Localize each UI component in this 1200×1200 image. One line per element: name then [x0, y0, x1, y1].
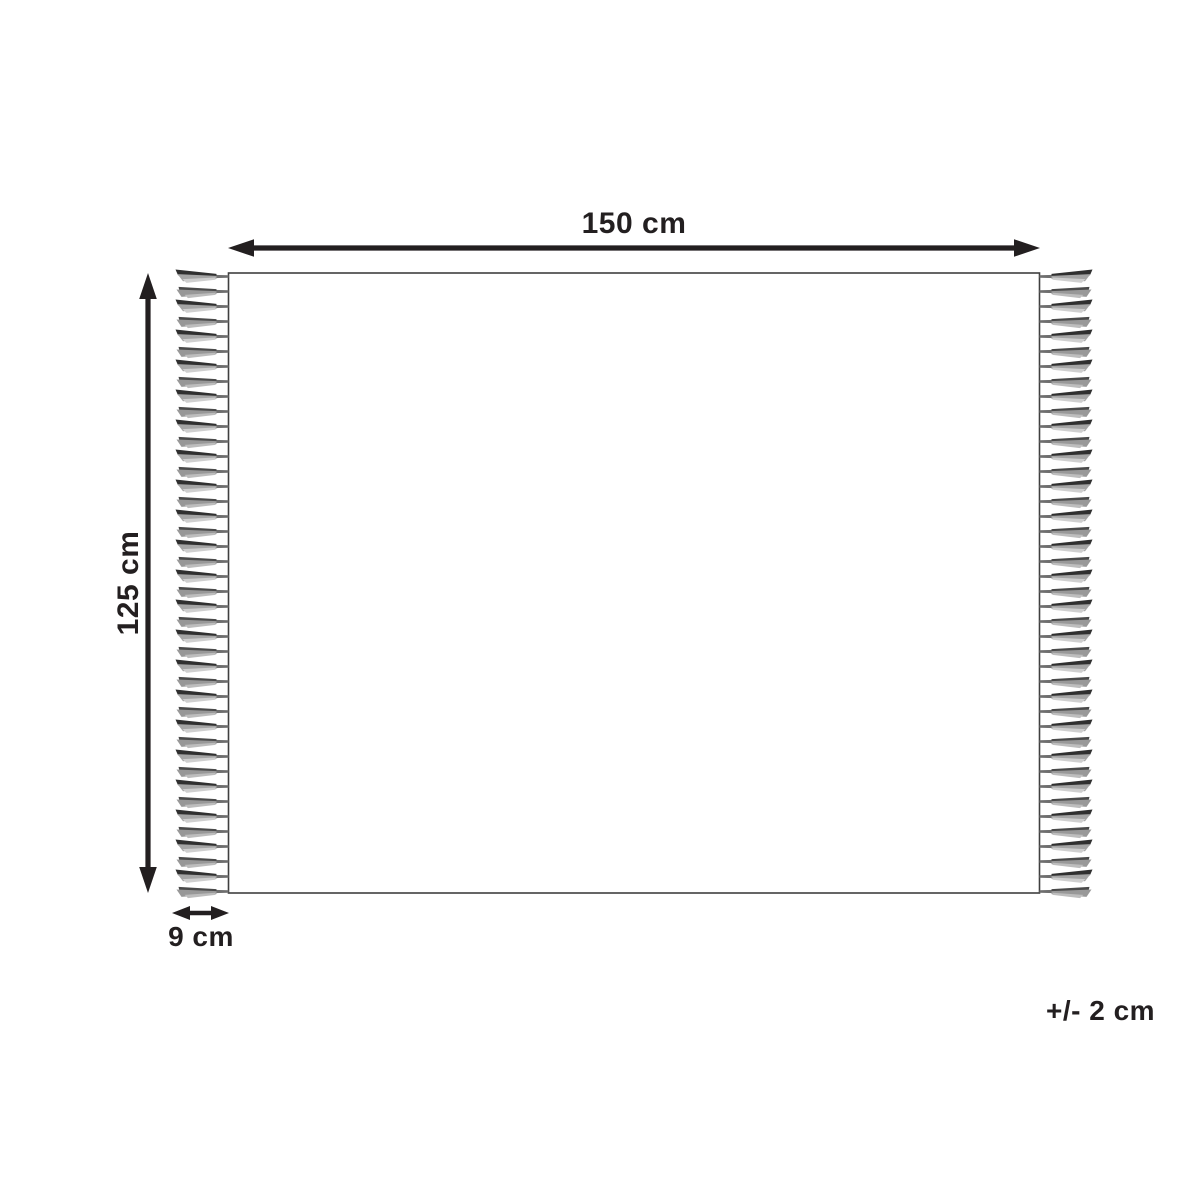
height-arrowhead-top: [139, 273, 157, 299]
tassel: [1040, 617, 1092, 628]
tassel: [176, 300, 229, 313]
tassel: [176, 450, 229, 463]
width-dimension-label: 150 cm: [228, 207, 1040, 242]
tassel: [176, 570, 229, 583]
tassel: [176, 870, 229, 883]
tassel: [177, 527, 229, 538]
tassel: [1040, 660, 1093, 673]
tassel: [1040, 467, 1092, 478]
width-arrowhead-right: [1014, 239, 1040, 257]
tassel: [1040, 720, 1093, 733]
tassel: [176, 420, 229, 433]
tassel: [1040, 887, 1092, 898]
tassel: [1040, 647, 1092, 658]
tassel: [176, 540, 229, 553]
tassel: [1040, 497, 1092, 508]
tassel: [176, 330, 229, 343]
tassel: [176, 390, 229, 403]
tolerance-label: +/- 2 cm: [1046, 995, 1155, 1027]
tassel: [177, 887, 229, 898]
width-arrowhead-left: [228, 239, 254, 257]
tassel: [1040, 450, 1093, 463]
tassel: [1040, 407, 1092, 418]
tassel: [1040, 767, 1092, 778]
tassel: [1040, 737, 1092, 748]
tassel: [176, 600, 229, 613]
tassel: [1040, 527, 1092, 538]
tassel: [176, 780, 229, 793]
tassel: [1040, 270, 1093, 283]
tassel: [177, 857, 229, 868]
tassel: [1040, 437, 1092, 448]
dimension-diagram: 150 cm 125 cm 9 cm +/- 2 cm: [0, 0, 1200, 1200]
tassel: [1040, 557, 1092, 568]
tassel: [177, 827, 229, 838]
tassel: [1040, 377, 1092, 388]
tassel: [1040, 420, 1093, 433]
tassel: [1040, 480, 1093, 493]
rug-outline: [229, 273, 1040, 893]
tassel: [176, 660, 229, 673]
tassel: [177, 587, 229, 598]
fringe-right: [1040, 270, 1093, 899]
tassel: [1040, 570, 1093, 583]
tassel: [176, 360, 229, 373]
diagram-canvas: [0, 0, 1200, 1200]
tassel: [177, 497, 229, 508]
tassel: [1040, 300, 1093, 313]
fringe-arrowhead-right: [211, 906, 229, 920]
tassel: [1040, 347, 1092, 358]
fringe-dimension-label: 9 cm: [161, 921, 241, 953]
tassel: [1040, 840, 1093, 853]
height-dimension-label: 125 cm: [112, 531, 147, 636]
tassel: [176, 840, 229, 853]
tassel: [1040, 287, 1092, 298]
tassel: [1040, 707, 1092, 718]
tassel: [176, 630, 229, 643]
tassel: [176, 510, 229, 523]
height-arrowhead-bottom: [139, 867, 157, 893]
tassel: [177, 347, 229, 358]
tassel: [1040, 827, 1092, 838]
tassel: [177, 287, 229, 298]
tassel: [1040, 360, 1093, 373]
tassel: [1040, 630, 1093, 643]
tassel: [177, 557, 229, 568]
tassel: [1040, 330, 1093, 343]
width-dimension-arrow: [228, 239, 1040, 257]
tassel: [177, 797, 229, 808]
tassel: [1040, 600, 1093, 613]
tassel: [1040, 317, 1092, 328]
tassel: [177, 437, 229, 448]
tassel: [177, 707, 229, 718]
tassel: [176, 690, 229, 703]
tassel: [1040, 510, 1093, 523]
tassel: [1040, 750, 1093, 763]
tassel: [1040, 810, 1093, 823]
fringe-left: [176, 270, 229, 899]
tassel: [177, 737, 229, 748]
tassel: [177, 467, 229, 478]
tassel: [176, 750, 229, 763]
tassel: [177, 317, 229, 328]
tassel: [1040, 857, 1092, 868]
fringe-arrowhead-left: [172, 906, 190, 920]
tassel: [1040, 587, 1092, 598]
tassel: [177, 767, 229, 778]
tassel: [176, 480, 229, 493]
fringe-dimension-arrow: [172, 906, 229, 920]
tassel: [176, 270, 229, 283]
tassel: [1040, 390, 1093, 403]
tassel: [1040, 780, 1093, 793]
tassel: [177, 377, 229, 388]
tassel: [1040, 540, 1093, 553]
tassel: [1040, 690, 1093, 703]
tassel: [1040, 677, 1092, 688]
tassel: [177, 617, 229, 628]
tassel: [1040, 797, 1092, 808]
tassel: [176, 720, 229, 733]
tassel: [1040, 870, 1093, 883]
tassel: [177, 407, 229, 418]
tassel: [177, 647, 229, 658]
tassel: [177, 677, 229, 688]
tassel: [176, 810, 229, 823]
